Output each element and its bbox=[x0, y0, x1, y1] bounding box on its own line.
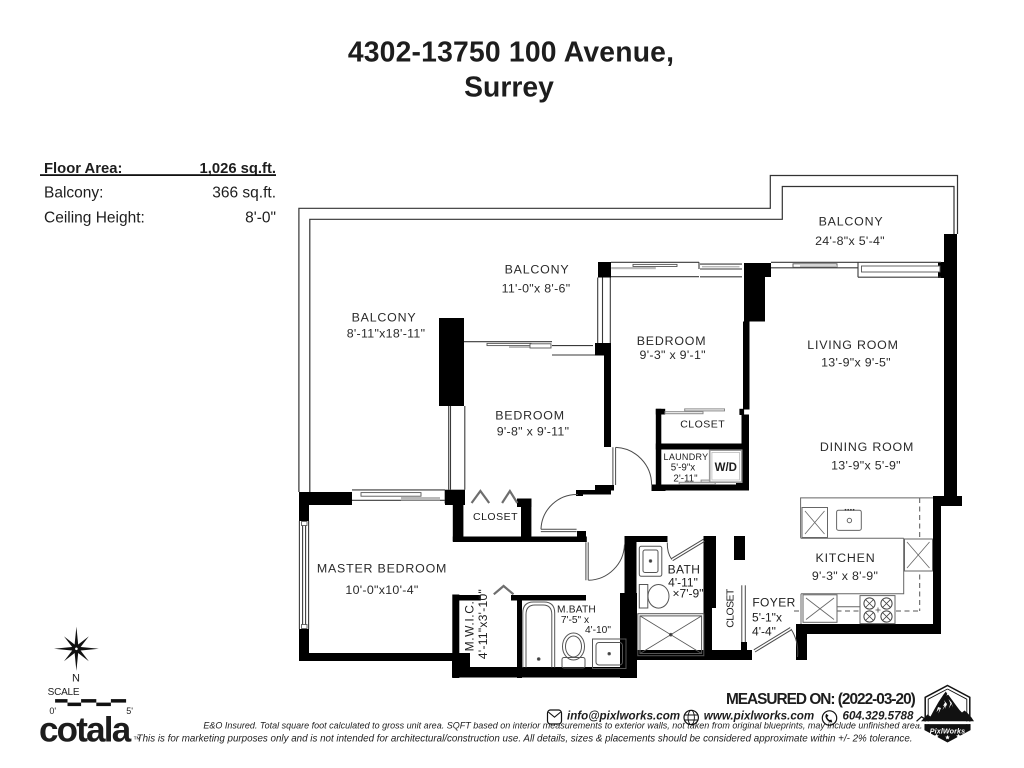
svg-text:4'-11"x3'-10": 4'-11"x3'-10" bbox=[476, 589, 490, 659]
svg-text:MASTER BEDROOM: MASTER BEDROOM bbox=[317, 562, 447, 576]
svg-text:PixlWorks: PixlWorks bbox=[930, 727, 966, 736]
svg-text:BALCONY: BALCONY bbox=[352, 311, 417, 325]
svg-text:9'-3" x 9'-1": 9'-3" x 9'-1" bbox=[640, 348, 706, 362]
svg-text:24'-8"x 5'-4": 24'-8"x 5'-4" bbox=[815, 234, 885, 248]
svg-text:11'-0"x 8'-6": 11'-0"x 8'-6" bbox=[502, 282, 571, 296]
svg-text:Surrey: Surrey bbox=[464, 71, 554, 103]
svg-text:366 sq.ft.: 366 sq.ft. bbox=[212, 185, 276, 202]
svg-text:13'-9"x 9'-5": 13'-9"x 9'-5" bbox=[821, 356, 891, 370]
svg-text:N: N bbox=[72, 673, 80, 685]
svg-text:E&O Insured. Total square foo: E&O Insured. Total square foot calculate… bbox=[203, 721, 922, 731]
svg-text:M.BATH: M.BATH bbox=[557, 605, 596, 616]
svg-text:5'-9"x: 5'-9"x bbox=[671, 463, 696, 474]
svg-text:BALCONY: BALCONY bbox=[819, 214, 884, 228]
svg-text:CLOSET: CLOSET bbox=[680, 418, 725, 430]
svg-text:KITCHEN: KITCHEN bbox=[816, 551, 876, 565]
svg-text:LAUNDRY: LAUNDRY bbox=[664, 452, 709, 462]
svg-text:LIVING ROOM: LIVING ROOM bbox=[807, 338, 898, 352]
svg-text:Ceiling Height:: Ceiling Height: bbox=[44, 209, 145, 226]
svg-text:604.329.5788: 604.329.5788 bbox=[843, 709, 914, 722]
svg-text:BEDROOM: BEDROOM bbox=[495, 409, 565, 423]
svg-text:CLOSET: CLOSET bbox=[473, 511, 518, 523]
svg-text:8'-0": 8'-0" bbox=[245, 209, 276, 226]
svg-text:BALCONY: BALCONY bbox=[505, 263, 570, 277]
svg-text:MEASURED ON: (2022-03-20): MEASURED ON: (2022-03-20) bbox=[726, 691, 916, 708]
svg-text:M.W.I.C.: M.W.I.C. bbox=[463, 601, 477, 652]
svg-text:4'-10": 4'-10" bbox=[585, 625, 611, 636]
svg-text:CLOSET: CLOSET bbox=[725, 588, 737, 628]
svg-text:×7'-9": ×7'-9" bbox=[673, 586, 704, 600]
svg-text:10'-0"x10'-4": 10'-0"x10'-4" bbox=[345, 583, 418, 597]
svg-text:cotala: cotala bbox=[39, 711, 132, 750]
svg-text:4302-13750 100 Avenue,: 4302-13750 100 Avenue, bbox=[348, 36, 674, 68]
svg-text:DINING ROOM: DINING ROOM bbox=[820, 440, 914, 454]
svg-text:BEDROOM: BEDROOM bbox=[637, 334, 707, 348]
svg-text:8'-11"x18'-11": 8'-11"x18'-11" bbox=[347, 327, 426, 341]
svg-text:Balcony:: Balcony: bbox=[44, 185, 103, 202]
svg-text:FOYER: FOYER bbox=[752, 596, 795, 610]
svg-text:2'-11": 2'-11" bbox=[673, 474, 698, 485]
svg-text:5'-1"x: 5'-1"x bbox=[752, 610, 782, 624]
svg-text:BATH: BATH bbox=[668, 562, 701, 576]
svg-text:9'-8" x 9'-11": 9'-8" x 9'-11" bbox=[497, 424, 570, 438]
svg-text:info@pixlworks.com: info@pixlworks.com bbox=[567, 709, 680, 722]
svg-text:www.pixlworks.com: www.pixlworks.com bbox=[704, 709, 814, 722]
svg-text:This is for marketing purposes: This is for marketing purposes only and … bbox=[137, 733, 913, 744]
svg-text:4'-4": 4'-4" bbox=[752, 624, 776, 638]
svg-text:13'-9"x 5'-9": 13'-9"x 5'-9" bbox=[831, 458, 901, 472]
svg-text:SCALE: SCALE bbox=[48, 687, 80, 698]
svg-text:W/D: W/D bbox=[715, 462, 737, 474]
svg-text:9'-3" x 8'-9": 9'-3" x 8'-9" bbox=[812, 569, 878, 583]
